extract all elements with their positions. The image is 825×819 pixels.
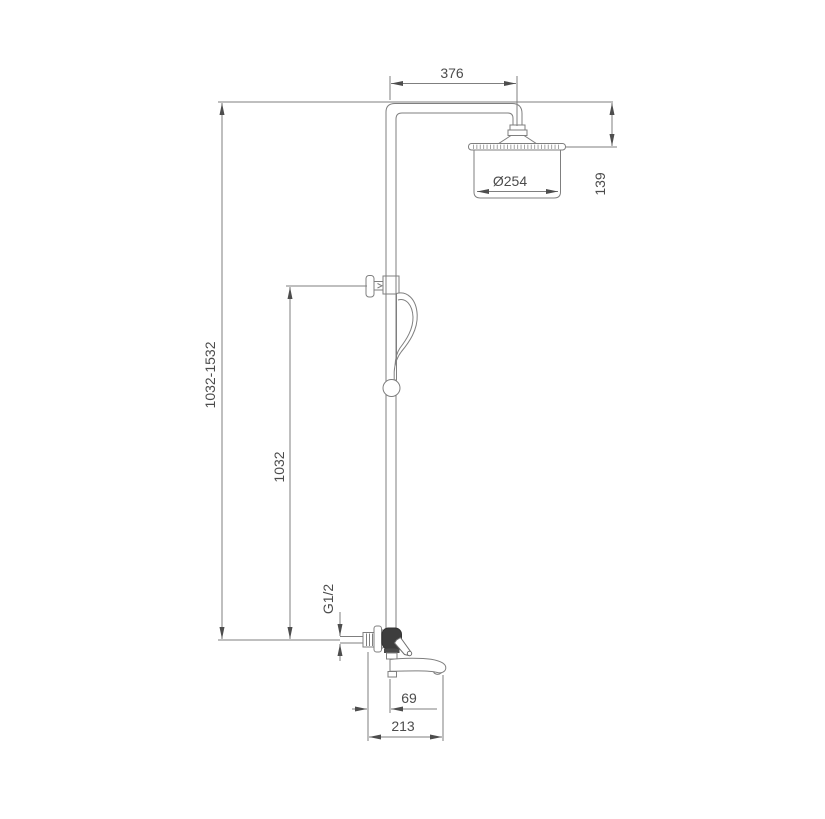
dim-g12-label: G1/2 <box>320 584 336 615</box>
tub-spout <box>390 658 446 673</box>
slider-bracket <box>383 276 399 294</box>
slide-rail-ball <box>383 380 400 397</box>
dim-height-range: 1032-1532 <box>202 103 222 639</box>
mixer-valve-assembly <box>340 626 446 677</box>
spout-root-base <box>388 672 397 678</box>
dim-arm-label: 376 <box>440 65 464 81</box>
head-rim <box>469 144 566 151</box>
dim-spout-reach: 213 <box>369 675 443 741</box>
hand-shower-head <box>394 293 417 380</box>
dim-head-diameter-label: Ø254 <box>493 173 527 189</box>
technical-drawing: Ø254 <box>0 0 825 819</box>
hand-shower-assembly <box>366 276 417 397</box>
dim-head-drop: 139 <box>565 103 617 196</box>
dim-riser-height: 1032 <box>271 286 367 639</box>
dim-inlet-thread: G1/2 <box>320 584 340 661</box>
wall-escutcheon <box>374 626 382 652</box>
dim-arm-length: 376 <box>390 65 517 126</box>
head-cone-joint <box>498 136 537 145</box>
drawing-canvas: Ø254 <box>0 0 825 819</box>
head-connector-nut-lower <box>508 130 527 136</box>
holder-knob <box>366 276 374 298</box>
valve-lower-band <box>384 649 400 654</box>
dim-213-label: 213 <box>391 718 415 734</box>
valve-handle-tip <box>407 651 411 655</box>
shower-column: Ø254 <box>340 104 566 678</box>
dim-drop-label: 139 <box>592 172 608 196</box>
dim-riser-label: 1032 <box>271 451 287 482</box>
overhead-shower: Ø254 <box>469 125 566 198</box>
valve-spout-collar <box>387 653 398 659</box>
dim-range-label: 1032-1532 <box>202 341 218 408</box>
dim-69-label: 69 <box>401 690 417 706</box>
